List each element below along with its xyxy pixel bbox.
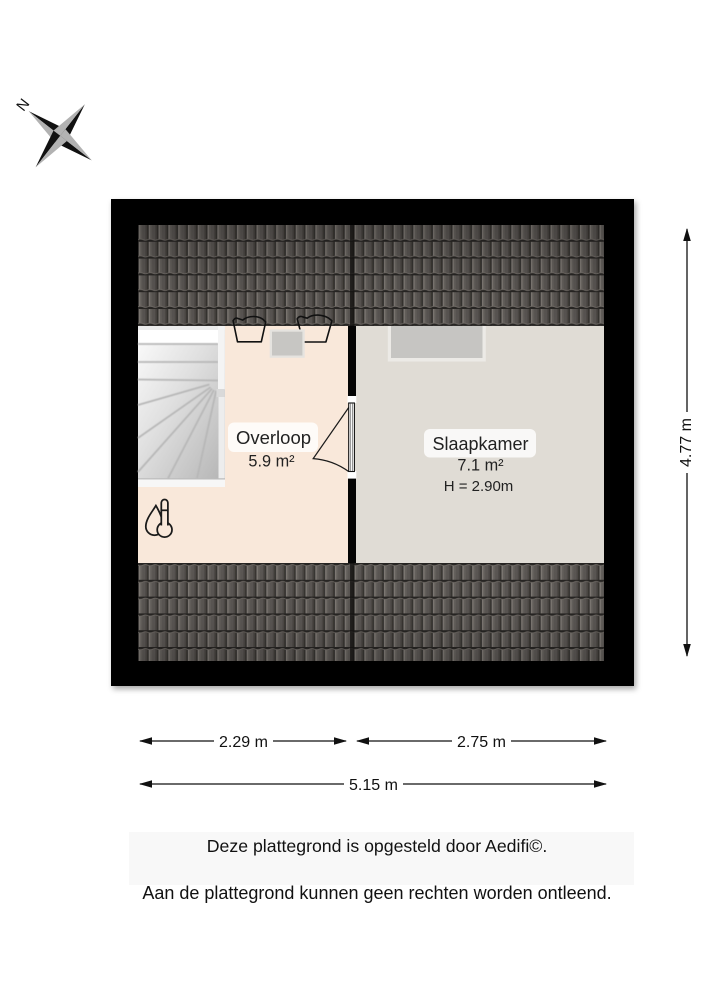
svg-text:Overloop: Overloop xyxy=(236,427,311,448)
svg-text:H = 2.90m: H = 2.90m xyxy=(444,478,514,495)
svg-text:Aan de plattegrond kunnen geen: Aan de plattegrond kunnen geen rechten w… xyxy=(142,883,611,903)
svg-text:5.15 m: 5.15 m xyxy=(349,777,398,794)
svg-text:7.1 m²: 7.1 m² xyxy=(457,457,504,475)
svg-text:2.75 m: 2.75 m xyxy=(457,734,506,751)
svg-text:5.9 m²: 5.9 m² xyxy=(248,453,295,471)
svg-text:Slaapkamer: Slaapkamer xyxy=(432,434,528,454)
svg-text:Deze plattegrond is opgesteld: Deze plattegrond is opgesteld door Aedif… xyxy=(207,836,547,856)
svg-text:4.77 m: 4.77 m xyxy=(678,418,695,467)
svg-text:2.29 m: 2.29 m xyxy=(219,734,268,751)
svg-text:N: N xyxy=(13,96,33,115)
